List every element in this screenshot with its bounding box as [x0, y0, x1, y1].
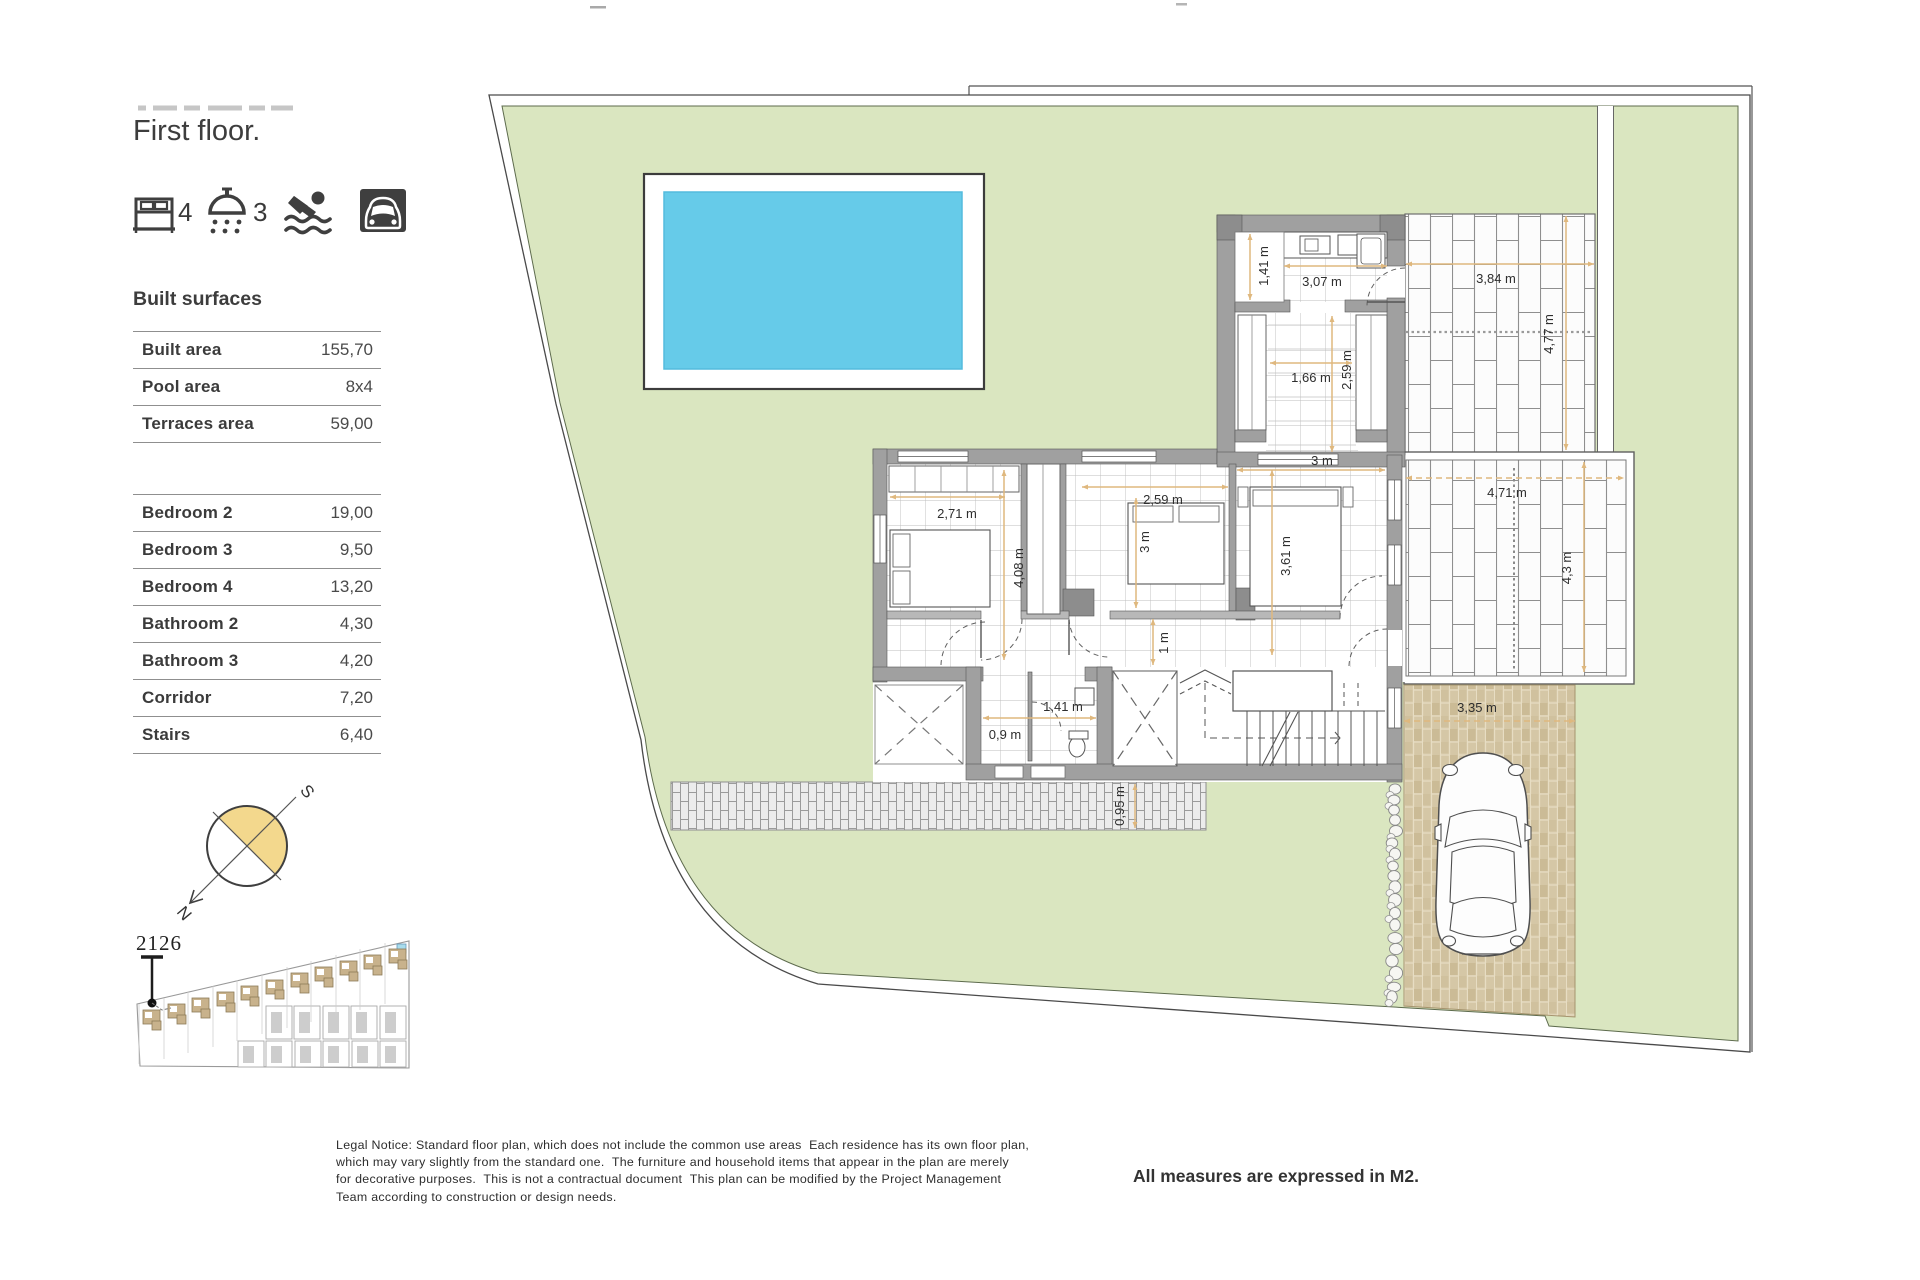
svg-text:2,59 m: 2,59 m: [1143, 492, 1183, 507]
svg-text:1,41 m: 1,41 m: [1043, 699, 1083, 714]
svg-text:4,71 m: 4,71 m: [1487, 485, 1527, 500]
svg-text:3,07 m: 3,07 m: [1302, 274, 1342, 289]
svg-text:4,08 m: 4,08 m: [1011, 548, 1026, 588]
svg-text:2126: 2126: [136, 931, 182, 955]
svg-text:3 m: 3 m: [1311, 453, 1333, 468]
svg-text:2,71 m: 2,71 m: [937, 506, 977, 521]
svg-text:3,84 m: 3,84 m: [1476, 271, 1516, 286]
svg-text:3 m: 3 m: [1137, 531, 1152, 553]
svg-text:0,95 m: 0,95 m: [1112, 786, 1127, 826]
svg-text:0,9 m: 0,9 m: [989, 727, 1022, 742]
svg-text:3,35 m: 3,35 m: [1457, 700, 1497, 715]
svg-text:4,77 m: 4,77 m: [1541, 314, 1556, 354]
svg-text:2,59 m: 2,59 m: [1339, 350, 1354, 390]
svg-text:1 m: 1 m: [1156, 632, 1171, 654]
svg-text:N: N: [173, 903, 195, 925]
svg-text:4,3 m: 4,3 m: [1559, 552, 1574, 585]
svg-text:3,61 m: 3,61 m: [1278, 536, 1293, 576]
svg-text:1,41 m: 1,41 m: [1256, 246, 1271, 286]
svg-text:S: S: [296, 781, 318, 802]
svg-text:1,66 m: 1,66 m: [1291, 370, 1331, 385]
